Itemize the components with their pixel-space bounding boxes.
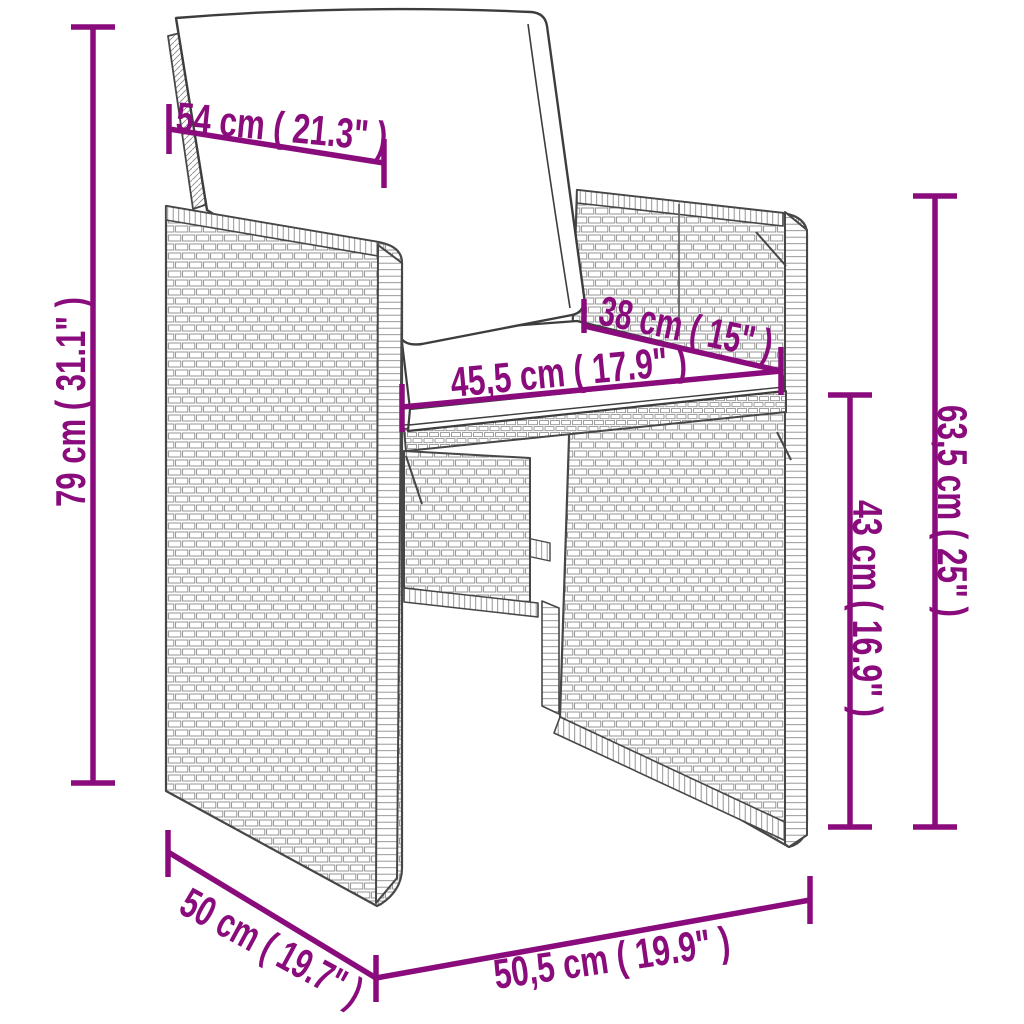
dimension-diagram: 54 cm ( 21.3" ) 79 cm ( 31.1" ) 38 cm ( … — [0, 0, 1024, 1024]
diagram-canvas: 54 cm ( 21.3" ) 79 cm ( 31.1" ) 38 cm ( … — [0, 0, 1024, 1024]
right-front-leg — [785, 212, 807, 847]
left-inner-wall — [404, 451, 530, 604]
left-panel-face — [166, 206, 402, 906]
dimension-label-side-depth: 50 cm ( 19.7" ) — [173, 879, 371, 1016]
left-front-leg — [376, 245, 402, 903]
rear-post — [542, 601, 559, 714]
right-arm-panel — [554, 190, 807, 847]
dimension-label-seat-height: 43 cm ( 16.9" ) — [844, 500, 891, 717]
dimension-label-front-width: 50,5 cm ( 19.9" ) — [491, 917, 733, 997]
dimension-label-armrest-height: 63,5 cm ( 25" ) — [929, 405, 976, 617]
left-arm-panel — [166, 206, 402, 906]
dimension-label-total-height: 79 cm ( 31.1" ) — [47, 297, 94, 507]
